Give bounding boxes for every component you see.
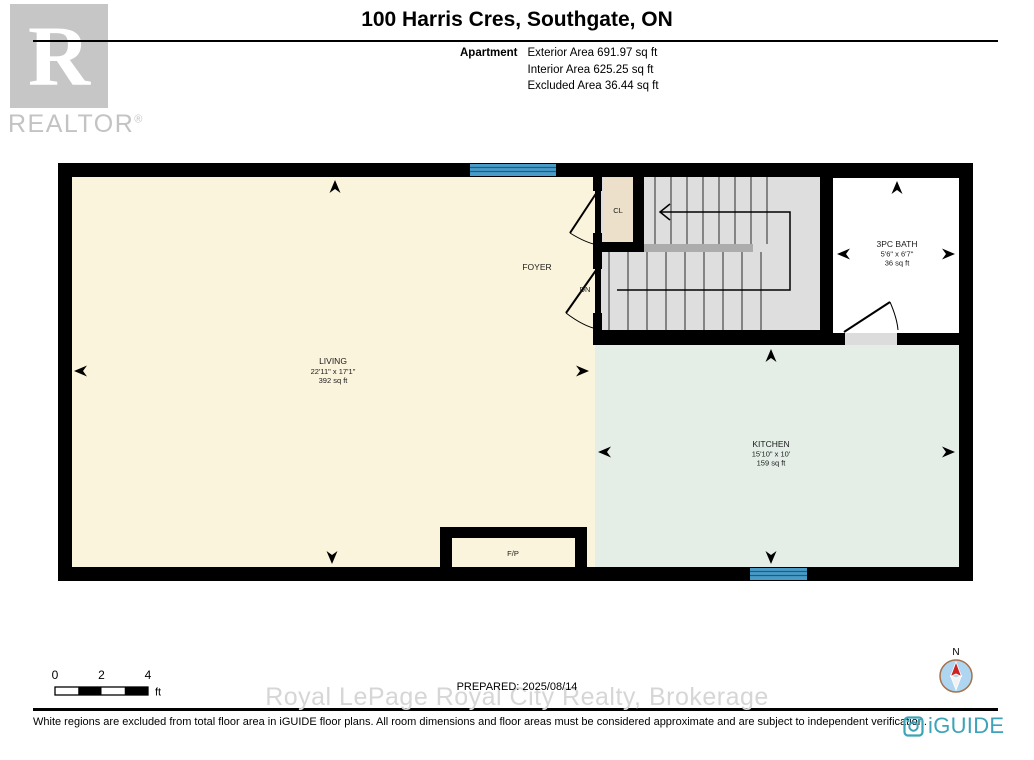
area-summary: Apartment Exterior Area 691.97 sq ft Int… (460, 47, 659, 97)
fireplace: F/P (440, 527, 587, 581)
bath-name: 3PC BATH (877, 239, 918, 249)
fireplace-label: F/P (507, 549, 519, 558)
kitchen-dims: 15'10" x 10' (752, 450, 791, 459)
bath-dims: 5'6" x 6'7" (881, 250, 914, 259)
wall-foyer-seg-b (593, 233, 602, 269)
compass-north-label: N (952, 647, 959, 658)
stair-landing-edge (644, 244, 753, 252)
foyer-label: FOYER (522, 262, 551, 272)
scale-tick-2: 2 (98, 668, 105, 682)
iguide-logo: iGUIDE (903, 713, 1004, 739)
page-title: 100 Harris Cres, Southgate, ON (0, 8, 1034, 32)
excluded-area: Excluded Area 36.44 sq ft (528, 80, 659, 92)
area-lines: Exterior Area 691.97 sq ft Interior Area… (528, 47, 659, 97)
interior-area: Interior Area 625.25 sq ft (528, 64, 659, 76)
exterior-area: Exterior Area 691.97 sq ft (528, 47, 659, 59)
registered-mark: ® (134, 114, 144, 126)
kitchen-window (750, 568, 807, 580)
bath-area: 36 sq ft (885, 259, 911, 268)
unit-type-label: Apartment (460, 47, 518, 97)
kitchen-area: 159 sq ft (757, 459, 787, 468)
closet-label: CL (613, 206, 623, 215)
living-name: LIVING (319, 356, 347, 366)
prepared-date: PREPARED: 2025/08/14 (0, 681, 1034, 693)
living-area: 392 sq ft (319, 376, 349, 385)
living-dims: 22'11" x 17'1" (311, 367, 356, 376)
header-divider (33, 40, 998, 42)
wall-closet-right (633, 177, 644, 252)
bath-door-landing (845, 333, 897, 345)
iguide-wordmark: iGUIDE (928, 713, 1004, 739)
scale-tick-4: 4 (145, 668, 152, 682)
wall-foyer-seg-c (593, 313, 602, 330)
stairs-down-label: DN (580, 285, 591, 294)
disclaimer-text: White regions are excluded from total fl… (33, 716, 927, 728)
floor-plan: F/P FOYER CL DN LIVING 22'11" x 17'1" 39… (58, 163, 973, 581)
wall-foyer-seg-a (593, 177, 602, 191)
realtor-wordmark: REALTOR® (8, 110, 126, 139)
wall-kitchen-top (593, 330, 833, 345)
kitchen-name: KITCHEN (752, 439, 789, 449)
iguide-icon (903, 716, 924, 737)
wall-stairs-bath (820, 177, 833, 345)
living-window (470, 164, 556, 176)
scale-tick-0: 0 (52, 668, 59, 682)
